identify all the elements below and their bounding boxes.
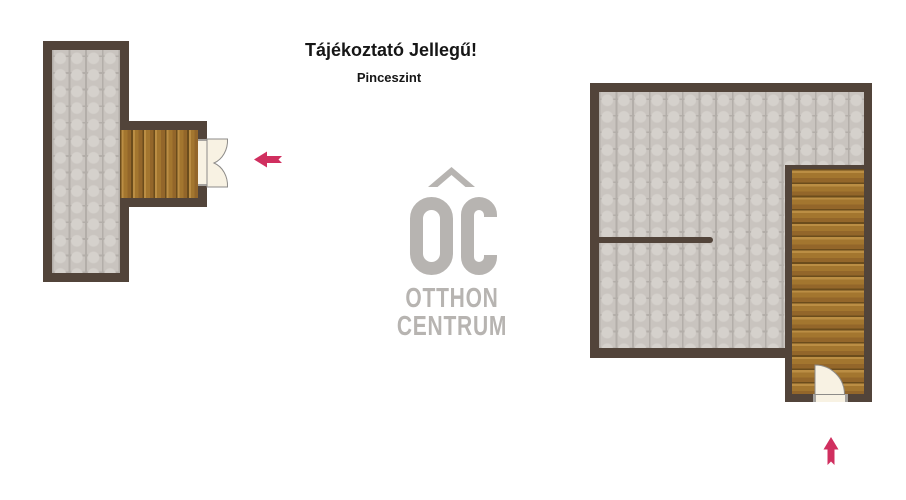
- staircase-bottom-wall-left: [785, 394, 815, 402]
- left-stairs-wood: [120, 130, 198, 198]
- single-door-icon: [812, 363, 846, 395]
- logo-word-centrum: CENTRUM: [397, 312, 507, 340]
- right-room-bottom-wall: [590, 348, 791, 358]
- staircase-wood: [792, 169, 864, 394]
- partition-wall: [599, 237, 713, 243]
- left-extension-bottom-wall: [120, 198, 207, 207]
- left-room-tiled-floor: [43, 41, 129, 282]
- right-room-left-wall: [590, 83, 599, 358]
- floor-level-label: Pinceszint: [357, 70, 421, 85]
- floorplan-right-section: [590, 83, 872, 402]
- right-door-opening: [815, 394, 845, 402]
- entry-arrow-up-icon: [822, 436, 840, 466]
- staircase-bottom-wall-right: [848, 394, 872, 402]
- double-door-icon: [206, 137, 229, 189]
- logo-word-otthon: OTTHON: [405, 284, 498, 312]
- right-door-jamb-left: [813, 394, 816, 402]
- page-title: Tájékoztató Jellegű!: [305, 40, 477, 61]
- otthon-centrum-logo-monogram: [403, 165, 503, 280]
- left-extension-top-wall: [120, 121, 207, 130]
- exit-arrow-left-icon: [253, 150, 283, 169]
- staircase-left-wall: [785, 165, 792, 402]
- right-room-right-wall: [864, 83, 872, 402]
- floorplan-left-section: [43, 41, 273, 282]
- right-room-top-wall: [590, 83, 872, 92]
